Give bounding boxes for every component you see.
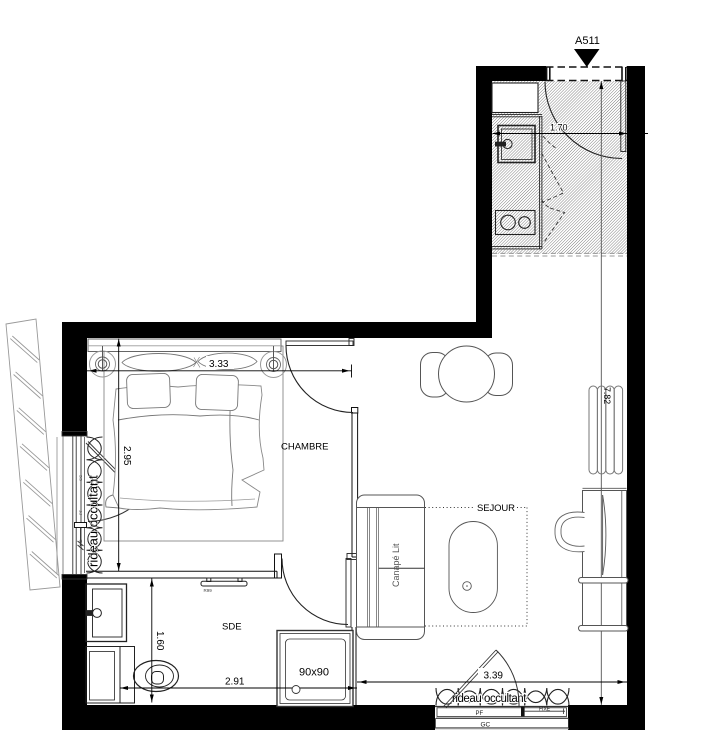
svg-text:2.95: 2.95 <box>121 446 132 466</box>
svg-text:3.39: 3.39 <box>484 671 504 682</box>
svg-text:PF: PF <box>78 509 83 515</box>
svg-text:2.91: 2.91 <box>225 677 245 688</box>
svg-text:rideau occultant: rideau occultant <box>452 693 527 705</box>
svg-text:CHAMBRE: CHAMBRE <box>281 442 329 453</box>
svg-text:GC: GC <box>78 475 83 481</box>
svg-text:7.82: 7.82 <box>602 387 612 404</box>
svg-text:A511: A511 <box>575 35 600 47</box>
svg-text:GC: GC <box>481 721 491 728</box>
svg-text:3.33: 3.33 <box>209 359 229 370</box>
svg-text:Canapé Lit: Canapé Lit <box>391 543 401 587</box>
svg-text:1.70: 1.70 <box>550 123 568 133</box>
svg-text:R99: R99 <box>204 588 213 593</box>
svg-text:SEJOUR: SEJOUR <box>477 503 515 514</box>
svg-text:PF: PF <box>476 711 484 717</box>
svg-text:1.60: 1.60 <box>154 631 165 651</box>
svg-text:SDE: SDE <box>222 622 242 633</box>
svg-text:RHE: RHE <box>78 539 83 548</box>
svg-text:90x90: 90x90 <box>299 667 329 679</box>
svg-text:FIXE: FIXE <box>539 707 551 713</box>
